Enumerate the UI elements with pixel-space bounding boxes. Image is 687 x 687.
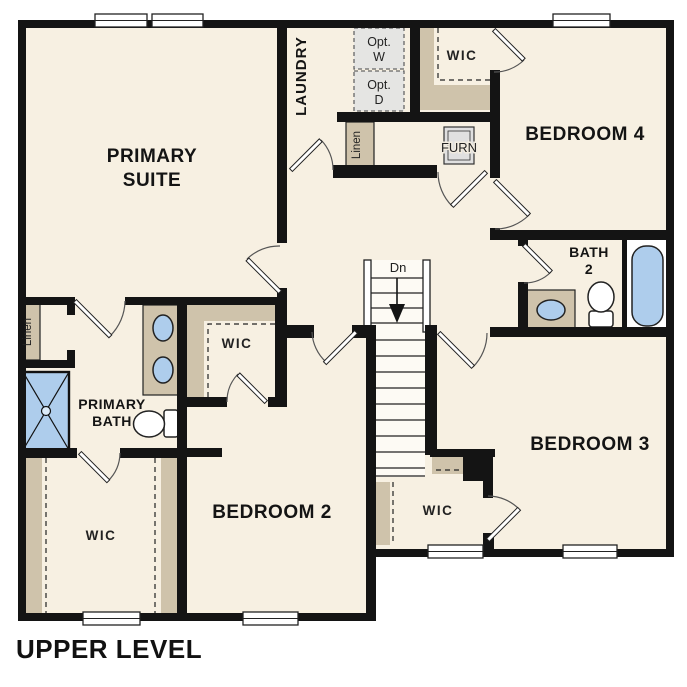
page-title: UPPER LEVEL [16,634,202,664]
wic-lower-center-shelf-left [376,482,390,545]
window [83,612,140,625]
window [563,545,617,558]
wall-bedroom4-left-b [490,70,500,178]
wic-mid-label: WIC [222,336,253,351]
utility-chase-box [463,451,493,481]
primary-toilet [134,410,179,437]
furnace-label: FURN [441,140,477,155]
wall-primary-right [277,20,287,243]
opt-washer-label-line2: W [373,50,385,64]
window [152,14,203,27]
wall-bedroom2-stub [187,448,222,457]
wall-primary-bottom-a [18,297,72,305]
wall-linen-hall-stub-a [67,297,75,315]
wall-tub-divider [622,240,627,332]
primary-suite-label-line1: PRIMARY [107,146,197,167]
opt-dryer-label-line2: D [374,93,383,107]
primary-suite-label-line2: SUITE [123,170,181,191]
wall-laundry-right [410,20,420,115]
wall-wic-mid-right [275,297,287,407]
wic-lower-left-label: WIC [86,528,117,543]
wall-stair-left [366,325,376,621]
wall-linen-hall-stub-b [67,350,75,368]
wall-bedroom4-left-a [490,20,500,28]
wall-bedroom3-top-b [490,327,674,337]
wic-top-shelf-bottom [420,85,492,110]
stairs-down-label: Dn [390,260,407,275]
bath2-label-line2: 2 [585,261,593,277]
wall-exterior-bottom-left [18,613,376,621]
stair-rail-left [364,260,371,332]
window [95,14,147,27]
wall-linen-furn-top [337,112,497,122]
wall-laundry-bottom [333,165,437,178]
stair-rail-right [423,260,430,332]
wall-wic-lower-center-right-a [483,481,493,498]
wall-wic-lower-left-top-b [120,448,177,458]
wall-wic-mid-bottom-b [268,397,287,407]
wall-exterior-bottom-right [370,549,674,557]
bath2-sink [537,300,565,320]
bedroom3-label: BEDROOM 3 [530,434,650,455]
linen-laundry-label: Linen [351,131,363,159]
bath2-label-line1: BATH [569,244,609,260]
wic-lower-left-shelf-left [26,458,42,613]
opt-dryer-label-line1: Opt. [367,78,391,92]
window [553,14,610,27]
wall-left-long [177,297,187,621]
primary-bath-label-line1: PRIMARY [78,396,146,412]
primary-bath-label-line2: BATH [92,413,132,429]
bedroom2-label: BEDROOM 2 [212,502,332,523]
shower-drain [42,407,51,416]
wall-exterior-right [666,20,674,557]
window [243,612,298,625]
window [428,545,483,558]
wall-stair-right [425,325,437,455]
wic-lower-left-shelf-right [161,458,177,613]
wic-top-label: WIC [447,48,478,63]
primary-sink-1 [153,315,173,341]
floor-plan-page: PRIMARY SUITE LAUNDRY Opt. W Opt. D WIC … [0,0,687,687]
laundry-label: LAUNDRY [293,36,310,116]
bedroom4-label: BEDROOM 4 [525,124,645,145]
wic-mid-shelf-top [187,305,275,321]
linen-hall-label: Linen [22,318,34,346]
wall-primary-bottom-b [125,297,287,305]
shower [23,372,69,450]
bathtub [632,246,663,326]
bath2-toilet [588,282,614,327]
wall-wic-lower-left-top-a [18,448,77,458]
primary-sink-2 [153,357,173,383]
wall-bath2-top [497,230,674,240]
floor-plan-drawing: PRIMARY SUITE LAUNDRY Opt. W Opt. D WIC … [0,0,687,687]
opt-washer-label-line1: Opt. [367,35,391,49]
wall-bedroom2-door-a [287,325,314,338]
wic-lower-center-label: WIC [423,503,454,518]
wic-lower-center-shelf-top [432,457,463,474]
